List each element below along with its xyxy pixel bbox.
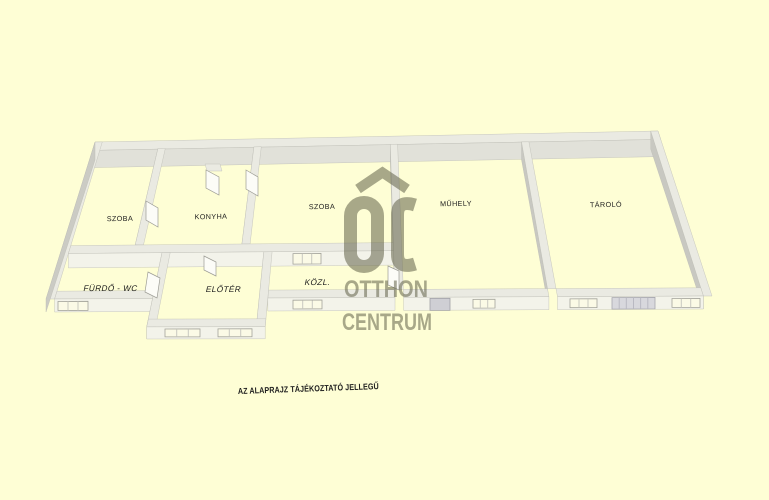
wall-right-top-face (651, 131, 712, 296)
window-furdo (58, 301, 88, 310)
wall-right-inner-face (651, 131, 704, 309)
wall-back (93, 131, 661, 168)
front-tarolo-top-face (556, 288, 703, 297)
window-muhely (473, 299, 495, 308)
wall-front-tarolo (556, 288, 703, 310)
floorplan-canvas: SZOBA KONYHA SZOBA MŰHELY TÁROLÓ FÜRDŐ -… (0, 0, 769, 500)
room-label-konyha: KONYHA (194, 212, 227, 222)
room-label-eloter: ELŐTÉR (205, 284, 242, 294)
room-label-muhely: MŰHELY (440, 199, 472, 209)
floorplan-page: SZOBA KONYHA SZOBA MŰHELY TÁROLÓ FÜRDŐ -… (0, 0, 769, 500)
konyha-wall-stub (205, 164, 222, 195)
watermark-line1: OTTHON (344, 276, 428, 303)
disclaimer-text: AZ ALAPRAJZ TÁJÉKOZTATÓ JELLEGŰ (238, 380, 379, 396)
window-eloter-left (165, 329, 200, 337)
window-middle-kozl (293, 253, 321, 264)
window-tarolo-right (672, 298, 700, 307)
room-label-kozl: KÖZL. (304, 277, 332, 287)
wall-front-furdo (55, 291, 155, 313)
room-label-furdo-wc: FÜRDŐ - WC (83, 283, 139, 293)
room-label-szoba-2: SZOBA (309, 202, 336, 211)
door-muhely (430, 298, 450, 310)
window-kozl (293, 300, 322, 309)
window-tarolo-left (570, 299, 597, 308)
divider-muhely-tarolo (522, 142, 557, 302)
wall-right (651, 131, 712, 309)
divider4-top-face (522, 142, 557, 289)
watermark-line2: CENTRUM (342, 309, 432, 336)
konyha-door (206, 170, 219, 195)
konyha-stub-top-face (205, 164, 222, 171)
window-eloter-right (218, 329, 252, 337)
watermark-roof-chevron-icon (358, 173, 407, 190)
room-label-szoba-1: SZOBA (107, 214, 134, 223)
room-label-tarolo: TÁROLÓ (590, 200, 622, 210)
watermark-letter-c (398, 204, 416, 266)
bay-front-top-face (147, 319, 266, 327)
